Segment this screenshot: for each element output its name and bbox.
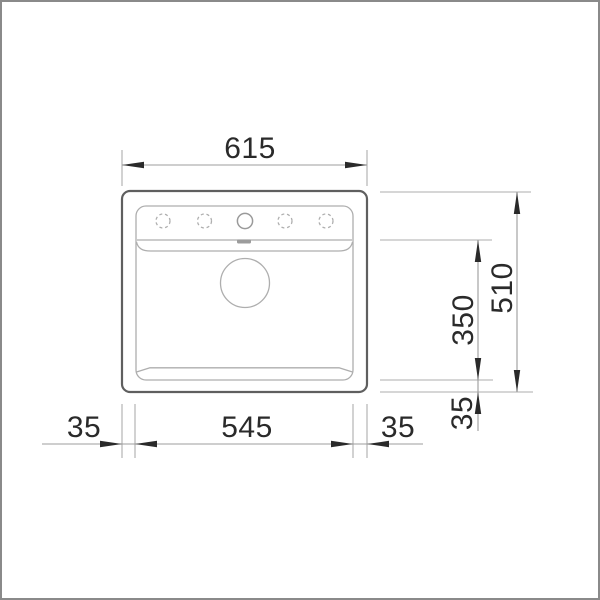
- sink-drawing: [122, 191, 367, 392]
- dim-label-width-right: 35: [381, 411, 415, 444]
- arrow-down-icon: [475, 358, 481, 380]
- arrow-left-icon: [135, 441, 157, 447]
- arrow-right-icon: [100, 441, 122, 447]
- arrow-down-icon: [514, 370, 520, 392]
- dim-label-width-total: 615: [224, 132, 276, 165]
- overflow-slot: [237, 240, 251, 244]
- sink-outer-edge: [122, 191, 367, 392]
- sink-dimension-diagram: 615 510 350 35 35 545 35: [0, 0, 600, 600]
- arrow-right-icon: [345, 162, 367, 168]
- dim-label-depth-bottom: 35: [446, 396, 479, 430]
- dim-label-width-inner: 545: [221, 411, 273, 444]
- dim-label-depth-total: 510: [486, 262, 519, 314]
- arrow-right-icon: [331, 441, 353, 447]
- arrow-up-icon: [514, 192, 520, 214]
- arrow-up-icon: [475, 240, 481, 262]
- arrow-left-icon: [122, 162, 144, 168]
- dimension-widths-bottom: 35 545 35: [42, 404, 423, 458]
- dim-label-depth-inner: 350: [447, 294, 480, 346]
- dim-label-width-left: 35: [67, 411, 101, 444]
- dimension-depths: 510 350 35: [380, 192, 533, 431]
- dimension-width-total: 615: [122, 132, 367, 186]
